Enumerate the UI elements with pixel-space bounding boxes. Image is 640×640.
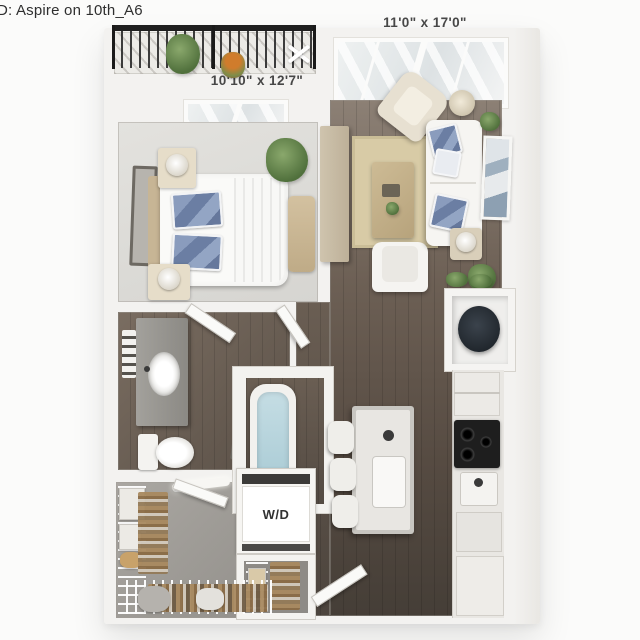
coffee-table-plant xyxy=(386,202,399,215)
railing-post xyxy=(112,25,115,69)
bed-pillow xyxy=(171,190,223,229)
window-mullion xyxy=(359,42,380,104)
towel-shelf xyxy=(122,330,136,378)
refrigerator xyxy=(454,372,500,416)
kitchen-shelf-plant xyxy=(446,272,468,287)
page-title: D: Aspire on 10th_A6 xyxy=(0,2,143,19)
wall-art xyxy=(481,136,513,221)
vanity-faucet xyxy=(144,366,150,372)
railing-post xyxy=(212,25,215,69)
armchair-cushion xyxy=(382,246,418,282)
kitchen-faucet xyxy=(474,478,483,487)
bistro-table xyxy=(458,306,500,352)
closet-basket xyxy=(196,588,224,610)
burner xyxy=(460,447,475,462)
coffee-table-books xyxy=(382,184,400,197)
bar-stool xyxy=(330,458,356,491)
kitchen-cabinet xyxy=(456,556,504,616)
sofa-cushion-seam xyxy=(430,182,476,184)
stove-cooktop xyxy=(454,420,500,468)
closet-basket xyxy=(138,586,170,612)
bedroom-plant xyxy=(266,138,308,182)
balcony-flower-pot xyxy=(221,52,245,78)
coffee-table xyxy=(372,162,414,238)
floorplan-render: D: Aspire on 10th_A6 11'0" x 17'0" 10'10… xyxy=(0,0,640,640)
kitchen-shelf-plant xyxy=(470,274,492,288)
bar-stool xyxy=(328,421,354,454)
washer-dryer-gap xyxy=(242,544,310,551)
bedroom-dimension-label: 10'10" x 12'7" xyxy=(182,73,332,88)
media-console xyxy=(320,126,349,262)
toilet-bowl xyxy=(156,437,194,468)
sofa-pillow xyxy=(432,148,462,178)
table-lamp xyxy=(166,154,188,176)
bar-stool xyxy=(332,495,358,528)
wall-shelf-plant xyxy=(480,112,500,131)
dishwasher xyxy=(456,512,502,552)
refrigerator-door-seam xyxy=(454,392,500,394)
toilet-tank xyxy=(138,434,158,470)
closet-hanging-clothes xyxy=(138,492,168,574)
bedroom-bench xyxy=(288,196,315,272)
burner xyxy=(460,427,475,442)
side-table-lamp xyxy=(456,232,476,252)
floor-lamp xyxy=(449,90,475,116)
vanity-sink xyxy=(148,352,180,396)
washer-dryer-unit: W/D xyxy=(242,486,310,542)
burner xyxy=(480,436,492,448)
balcony-plant xyxy=(166,34,200,74)
table-lamp xyxy=(158,268,180,290)
island-faucet xyxy=(383,430,394,441)
island-sink xyxy=(372,456,406,508)
washer-dryer-label: W/D xyxy=(263,507,290,522)
bed-duvet-ribbing xyxy=(234,178,284,282)
railing-post xyxy=(313,25,316,69)
washer-dryer-gap xyxy=(242,474,310,484)
living-room-dimension-label: 11'0" x 17'0" xyxy=(350,15,500,30)
